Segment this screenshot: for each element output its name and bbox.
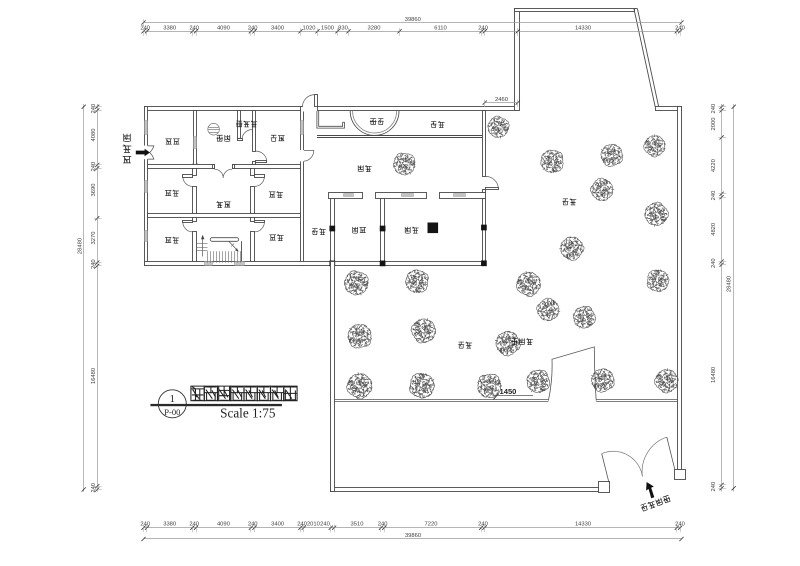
svg-text:240: 240 <box>140 26 150 32</box>
svg-text:240: 240 <box>91 104 97 114</box>
svg-text:6110: 6110 <box>434 26 446 32</box>
svg-text:240: 240 <box>711 258 717 268</box>
svg-text:240: 240 <box>91 259 97 269</box>
svg-text:2460: 2460 <box>495 97 508 103</box>
svg-text:240: 240 <box>711 482 717 492</box>
svg-text:240: 240 <box>297 522 307 528</box>
svg-text:3690: 3690 <box>91 184 97 197</box>
svg-text:3380: 3380 <box>163 522 176 528</box>
svg-text:2000: 2000 <box>711 118 717 131</box>
svg-text:4220: 4220 <box>711 159 717 172</box>
svg-text:3280: 3280 <box>368 26 381 32</box>
svg-text:3270: 3270 <box>91 232 97 245</box>
svg-text:39860: 39860 <box>405 533 421 539</box>
svg-text:1020: 1020 <box>303 26 316 32</box>
svg-text:3400: 3400 <box>271 26 284 32</box>
svg-text:240: 240 <box>478 26 488 32</box>
svg-text:240: 240 <box>711 104 717 114</box>
svg-text:240: 240 <box>189 26 199 32</box>
svg-text:1450: 1450 <box>500 387 517 396</box>
svg-text:Scale 1:75: Scale 1:75 <box>220 406 276 421</box>
svg-text:14330: 14330 <box>575 522 591 528</box>
svg-text:240: 240 <box>91 162 97 172</box>
svg-text:240: 240 <box>248 26 258 32</box>
svg-text:14330: 14330 <box>575 26 591 32</box>
svg-text:4090: 4090 <box>217 522 230 528</box>
svg-text:16480: 16480 <box>91 368 97 384</box>
svg-text:39860: 39860 <box>405 17 421 23</box>
svg-text:240: 240 <box>675 26 685 32</box>
svg-text:240: 240 <box>711 191 717 201</box>
svg-text:240: 240 <box>478 522 488 528</box>
svg-text:16480: 16480 <box>711 367 717 383</box>
svg-text:28480: 28480 <box>727 276 733 292</box>
svg-text:240: 240 <box>140 522 150 528</box>
svg-text:2010: 2010 <box>307 522 320 528</box>
svg-text:240: 240 <box>320 522 330 528</box>
svg-text:4090: 4090 <box>217 26 230 32</box>
svg-text:3400: 3400 <box>271 522 284 528</box>
svg-text:240: 240 <box>378 522 388 528</box>
svg-text:3380: 3380 <box>163 26 176 32</box>
svg-text:240: 240 <box>91 483 97 493</box>
svg-text:4080: 4080 <box>91 129 97 142</box>
svg-text:240: 240 <box>675 522 685 528</box>
svg-text:240: 240 <box>189 522 199 528</box>
svg-text:1: 1 <box>170 393 176 405</box>
svg-text:4820: 4820 <box>711 223 717 236</box>
svg-text:830: 830 <box>338 26 348 32</box>
svg-text:1500: 1500 <box>321 26 334 32</box>
svg-text:P-00: P-00 <box>164 407 180 417</box>
svg-text:3510: 3510 <box>351 522 364 528</box>
svg-text:7220: 7220 <box>425 522 438 528</box>
svg-text:240: 240 <box>248 522 258 528</box>
svg-text:28480: 28480 <box>78 238 84 254</box>
